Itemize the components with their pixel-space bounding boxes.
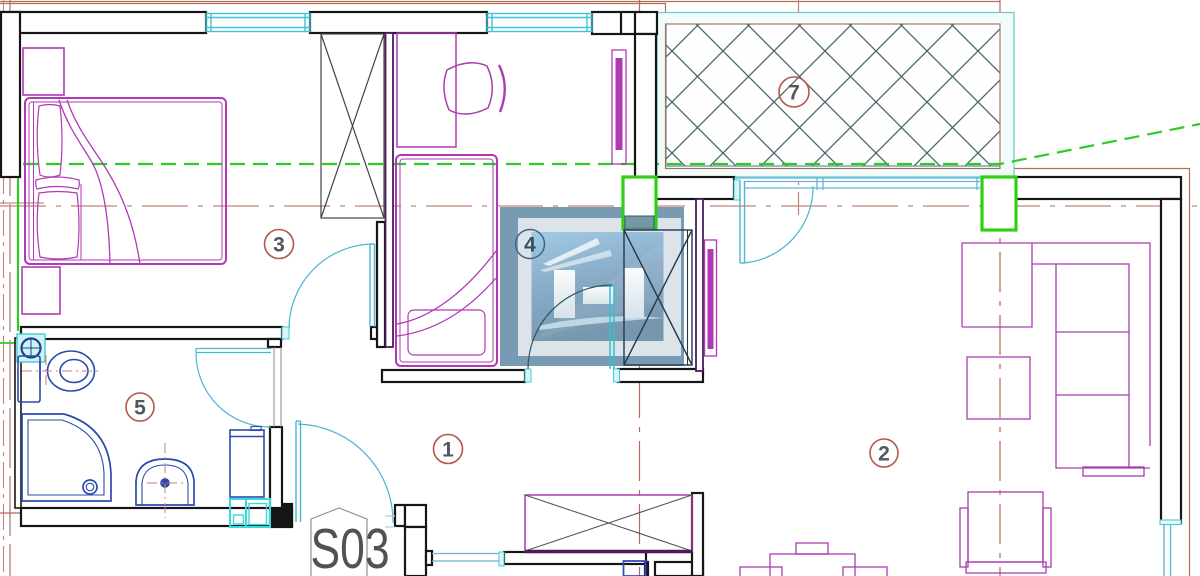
svg-text:4: 4 (524, 234, 536, 257)
svg-text:2: 2 (878, 443, 890, 466)
svg-text:3: 3 (273, 234, 285, 257)
svg-text:5: 5 (134, 397, 146, 420)
svg-text:1: 1 (442, 439, 454, 462)
svg-text:S03: S03 (310, 517, 389, 576)
svg-text:7: 7 (788, 82, 800, 105)
